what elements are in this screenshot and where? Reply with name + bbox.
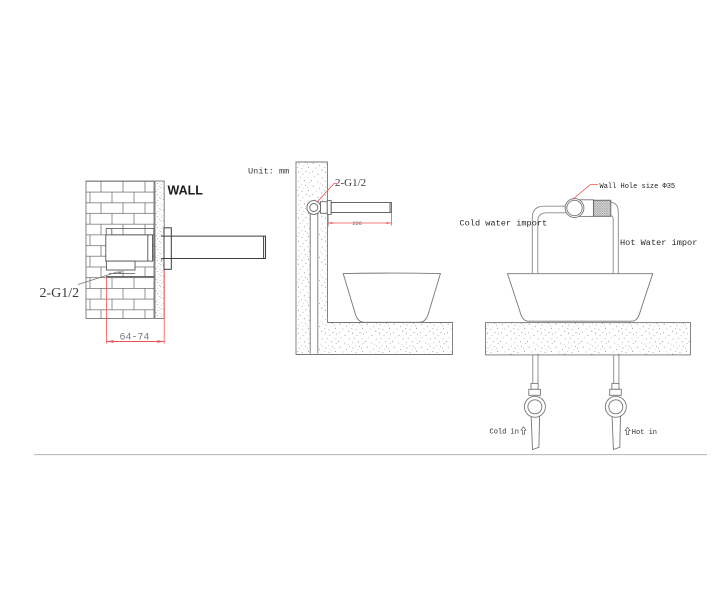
svg-text:WALL: WALL [168,184,204,198]
svg-text:Hot in: Hot in [632,429,657,437]
svg-text:2-G1/2: 2-G1/2 [40,286,80,301]
svg-text:2-G1/2: 2-G1/2 [335,177,366,189]
svg-text:Wall Hole size Φ35: Wall Hole size Φ35 [600,183,676,191]
svg-text:Cold in: Cold in [490,429,519,437]
svg-text:64-74: 64-74 [120,333,150,344]
svg-text:Cold water import: Cold water import [460,219,548,229]
svg-text:Hot Water impor: Hot Water impor [620,238,697,248]
svg-text:Unit: mm: Unit: mm [248,167,289,177]
svg-text:226: 226 [353,221,362,227]
